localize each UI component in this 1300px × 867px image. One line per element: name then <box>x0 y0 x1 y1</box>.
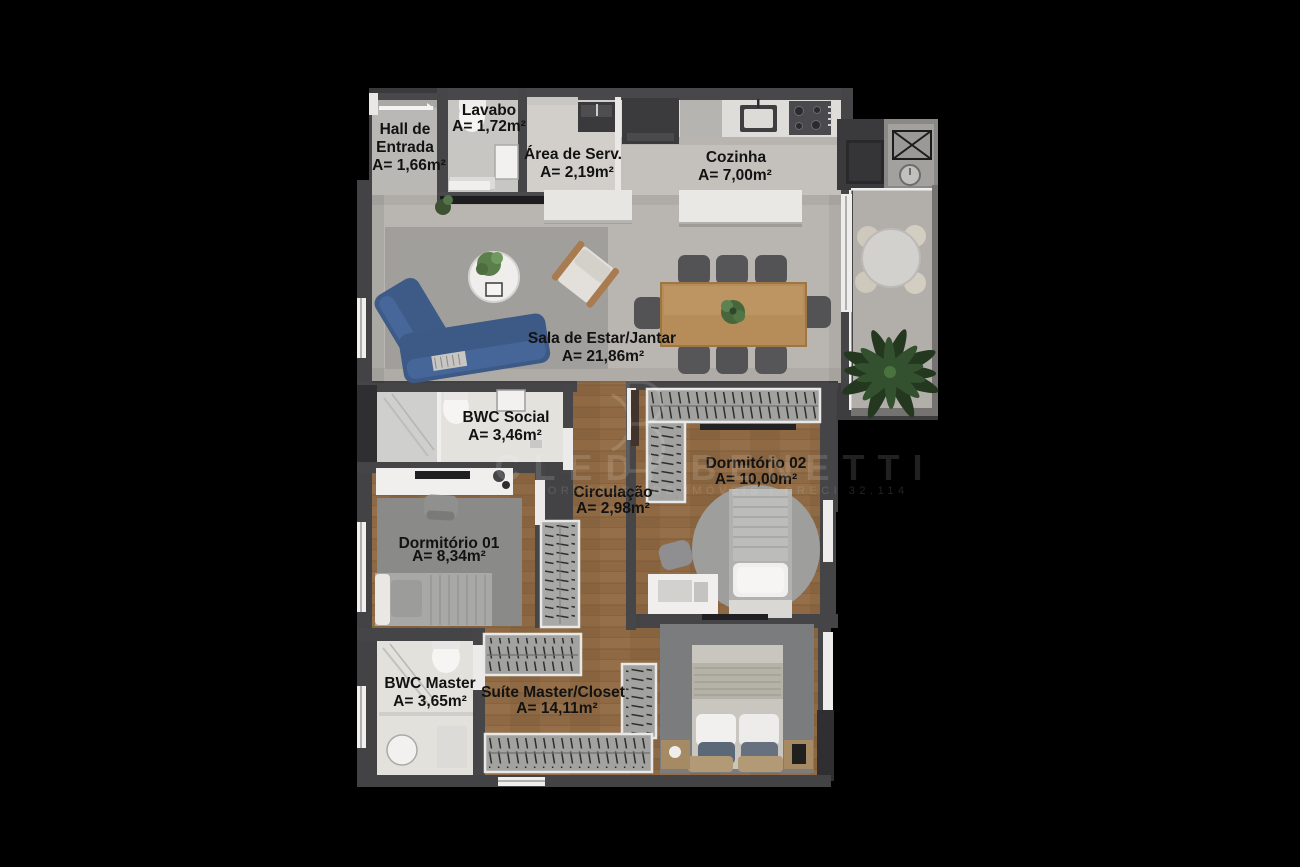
svg-text:A= 7,00m²: A= 7,00m² <box>698 167 772 184</box>
svg-text:Hall de: Hall de <box>380 121 431 138</box>
svg-text:CLEDI BENETTI: CLEDI BENETTI <box>494 447 935 488</box>
svg-text:BWC Master: BWC Master <box>384 675 475 692</box>
svg-text:A= 1,66m²: A= 1,66m² <box>372 157 446 174</box>
svg-text:BWC Social: BWC Social <box>463 409 550 426</box>
svg-text:A= 8,34m²: A= 8,34m² <box>412 548 486 565</box>
svg-text:Entrada: Entrada <box>376 139 434 156</box>
svg-text:Cozinha: Cozinha <box>706 149 767 166</box>
svg-text:A= 1,72m²: A= 1,72m² <box>452 118 526 135</box>
svg-text:A= 14,11m²: A= 14,11m² <box>516 700 597 717</box>
svg-text:A= 3,65m²: A= 3,65m² <box>393 693 467 710</box>
svg-text:CORRETORA DE IMÓVEIS | CRECI 3: CORRETORA DE IMÓVEIS | CRECI 32.114 <box>535 484 908 497</box>
svg-text:Sala de Estar/Jantar: Sala de Estar/Jantar <box>528 330 676 347</box>
svg-text:A= 21,86m²: A= 21,86m² <box>562 348 644 365</box>
svg-text:A= 2,98m²: A= 2,98m² <box>576 500 650 517</box>
svg-text:Suíte Master/Closet: Suíte Master/Closet <box>481 684 625 701</box>
svg-text:A= 2,19m²: A= 2,19m² <box>540 164 614 181</box>
svg-text:A= 3,46m²: A= 3,46m² <box>468 427 542 444</box>
svg-text:Área de Serv.: Área de Serv. <box>524 146 622 163</box>
svg-text:Lavabo: Lavabo <box>462 102 516 119</box>
